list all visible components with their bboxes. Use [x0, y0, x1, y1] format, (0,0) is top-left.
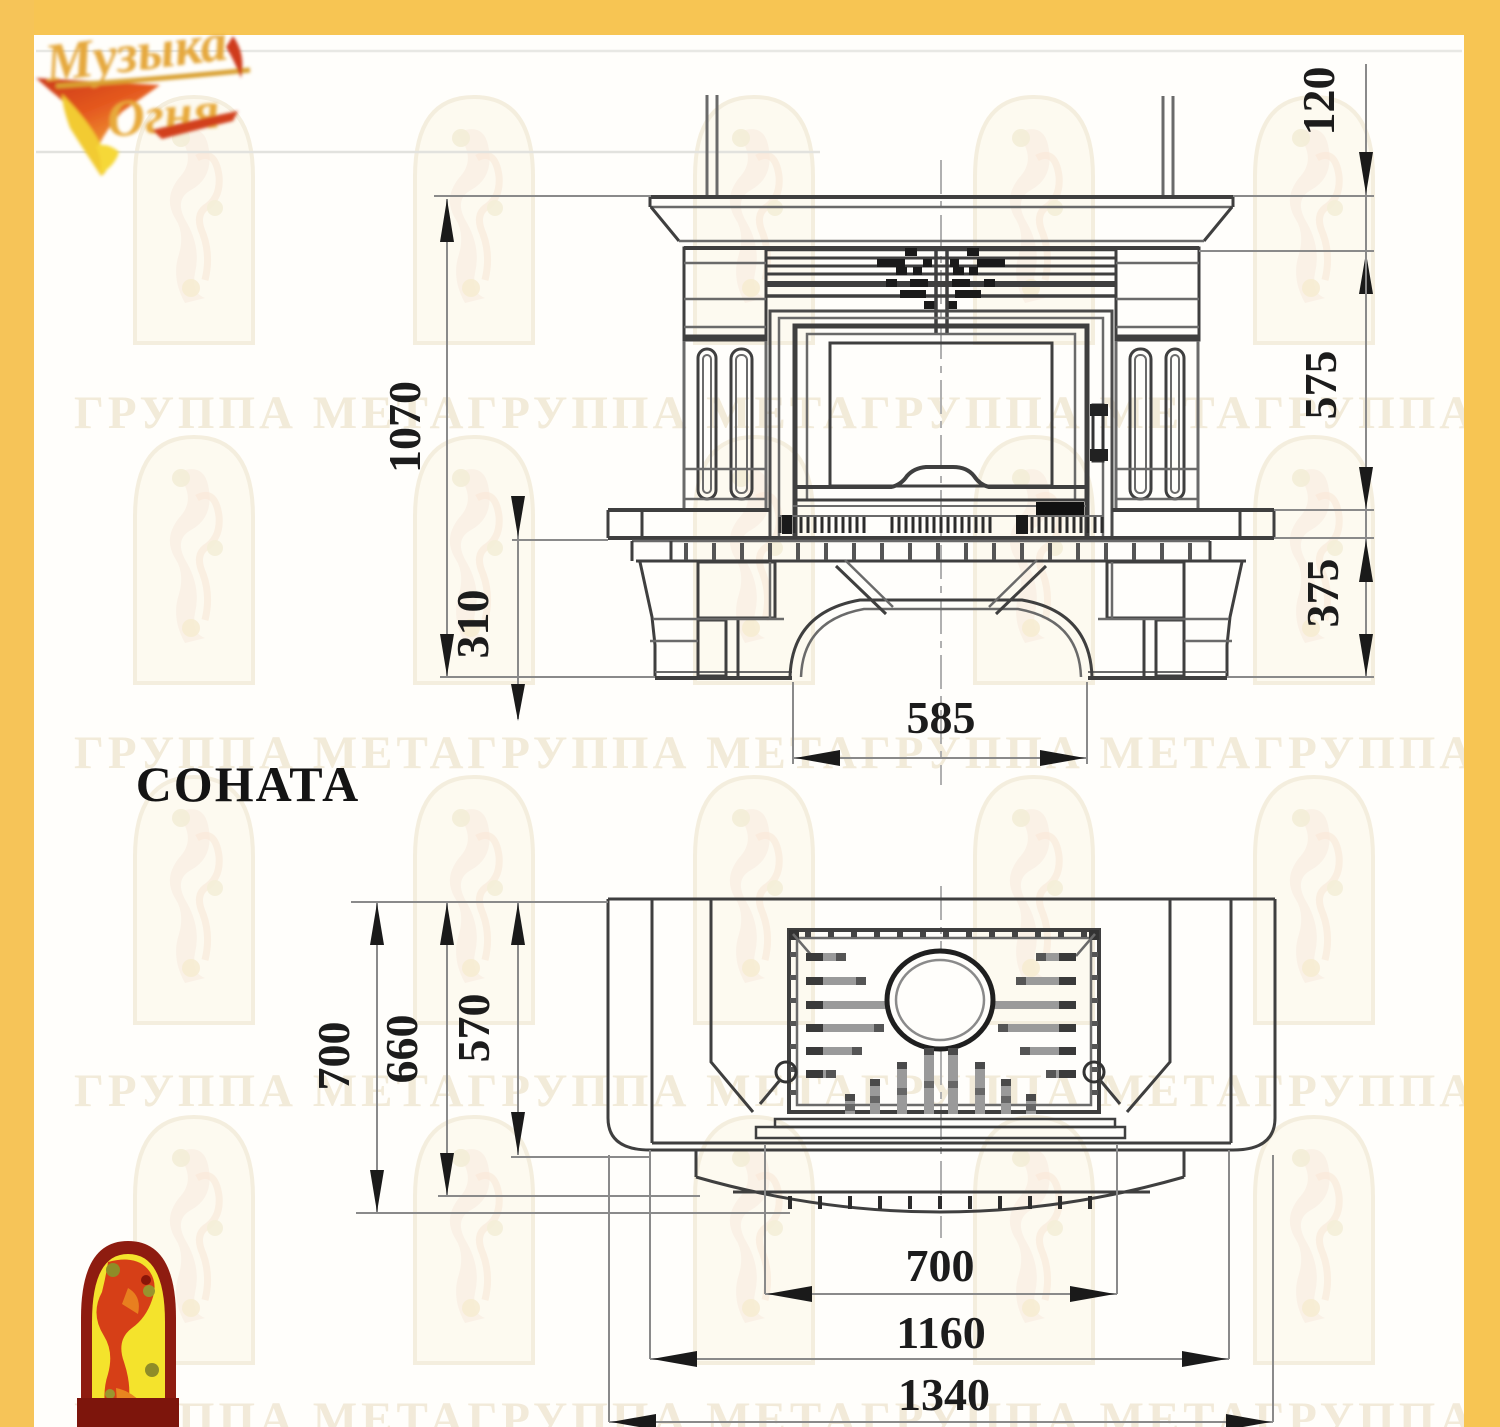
svg-text:Огня: Огня	[105, 82, 222, 149]
svg-text:СОНАТА: СОНАТА	[136, 756, 361, 812]
svg-text:1340: 1340	[898, 1369, 990, 1420]
svg-text:585: 585	[907, 692, 976, 743]
svg-text:575: 575	[1295, 351, 1346, 420]
svg-text:700: 700	[308, 1022, 359, 1091]
svg-text:660: 660	[376, 1015, 427, 1084]
svg-text:310: 310	[447, 590, 498, 659]
svg-text:ГРУППА МЕТАГРУППА МЕТАГРУППА М: ГРУППА МЕТАГРУППА МЕТАГРУППА МЕТАГРУППА …	[74, 387, 1500, 439]
svg-text:570: 570	[448, 994, 499, 1063]
svg-text:700: 700	[906, 1240, 975, 1291]
svg-text:375: 375	[1297, 559, 1348, 628]
svg-text:1070: 1070	[379, 381, 430, 473]
svg-text:120: 120	[1293, 67, 1344, 136]
svg-text:1160: 1160	[896, 1307, 985, 1358]
